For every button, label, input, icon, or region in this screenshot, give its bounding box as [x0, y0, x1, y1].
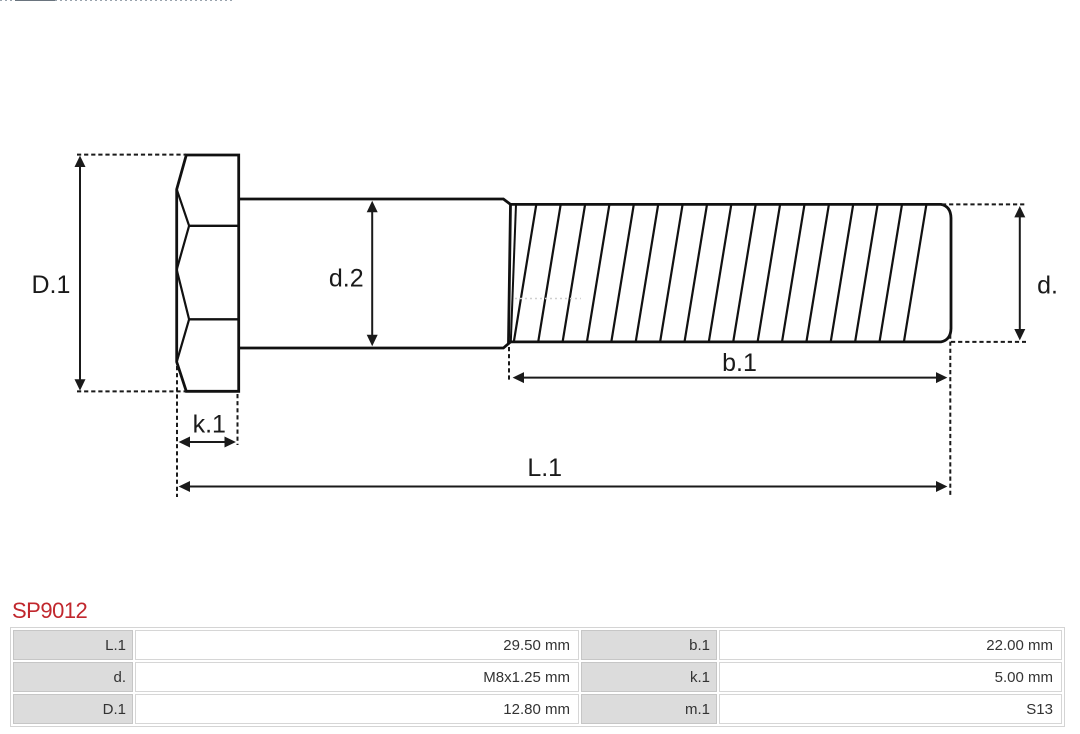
- svg-text:d.: d.: [1037, 271, 1058, 299]
- svg-text:b.1: b.1: [722, 349, 757, 377]
- svg-text:d.2: d.2: [329, 264, 364, 292]
- svg-text:L.1: L.1: [527, 454, 562, 482]
- svg-text:k.1: k.1: [193, 410, 226, 438]
- svg-text:D.1: D.1: [31, 271, 70, 299]
